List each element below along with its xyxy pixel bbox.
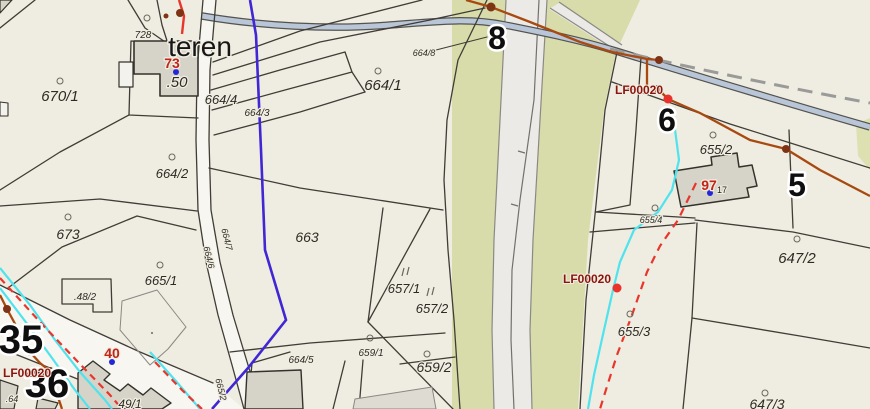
route-number: 5: [788, 167, 806, 203]
building-center-dot: [151, 332, 153, 334]
parcel-label: .64: [6, 394, 19, 404]
parcel-label: .48/2: [74, 292, 97, 303]
address-number-sub: 17: [717, 185, 727, 195]
parcel-label: 664/3: [244, 108, 269, 119]
brown-node-dot: [655, 56, 663, 64]
red-survey-dot: [613, 284, 622, 293]
area-note-label: teren: [168, 31, 232, 62]
building: [245, 370, 303, 409]
parcel-label: 670/1: [41, 88, 79, 105]
route-number: 8: [488, 20, 506, 56]
parcel-label: 664/5: [288, 355, 313, 366]
brown-node-dot: [164, 14, 169, 19]
parcel-label: 659/2: [416, 359, 451, 375]
parcel-label: 655/3: [618, 324, 651, 339]
parcel-label: 647/3: [749, 396, 784, 409]
building-outline: [0, 102, 8, 116]
survey-point-label: LF00020: [615, 83, 663, 97]
parcel-label: 664/2: [156, 166, 189, 181]
route-number: 35: [0, 318, 43, 362]
parcel-label: 663: [295, 229, 319, 245]
building-annex: [119, 62, 133, 87]
map-canvas[interactable]: 670/1 728 664/4 664/3 664/2 673 665/1 .4…: [0, 0, 870, 409]
parcel-label: 673: [56, 226, 80, 242]
parcel-label: 664/1: [364, 77, 402, 94]
parcel-label: 657/1: [388, 281, 421, 296]
brown-node-dot: [3, 305, 11, 313]
survey-point-label: LF00020: [563, 272, 611, 286]
address-number: 40: [104, 345, 120, 361]
parcel-label: 664/4: [205, 92, 238, 107]
brown-node-dot: [176, 9, 184, 17]
parcel-label: 664/8: [413, 48, 436, 58]
parcel-label: 657/2: [416, 301, 449, 316]
parcel-label: 728: [135, 30, 152, 41]
house-number-label: .50: [167, 74, 189, 91]
route-number: 6: [658, 102, 676, 138]
parcel-label: 49/1: [118, 397, 141, 409]
parcel-label: 655/2: [700, 142, 733, 157]
parcel-label: 655/4: [640, 215, 663, 225]
map-viewport: 670/1 728 664/4 664/3 664/2 673 665/1 .4…: [0, 0, 870, 409]
brown-node-dot: [487, 3, 496, 12]
parcel-label: 659/1: [358, 348, 383, 359]
address-number: 97: [701, 177, 717, 193]
parcel-label: 647/2: [778, 250, 816, 267]
brown-node-dot: [782, 145, 790, 153]
parcel-label: 665/1: [145, 273, 178, 288]
survey-point-label: LF00020: [3, 366, 51, 380]
